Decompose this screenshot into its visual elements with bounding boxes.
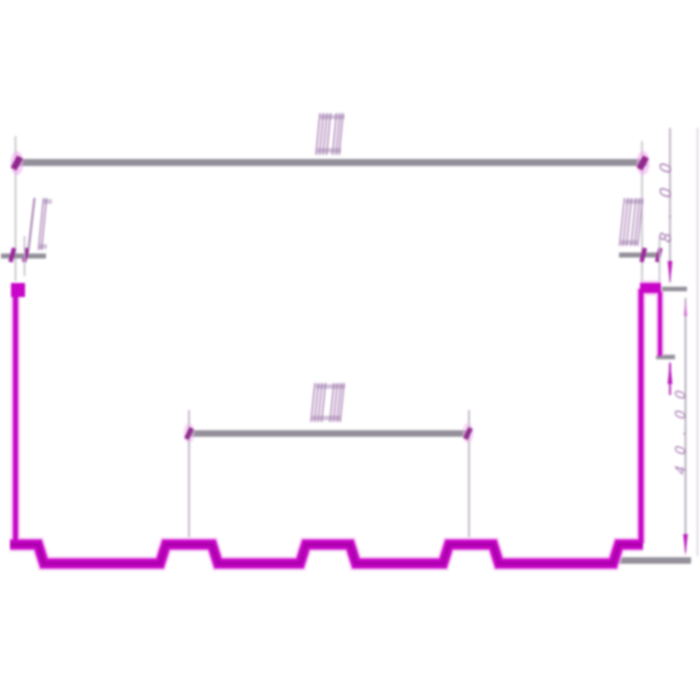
svg-text:8.00: 8.00 (656, 147, 675, 244)
svg-text:40.00: 40.00 (673, 378, 689, 476)
